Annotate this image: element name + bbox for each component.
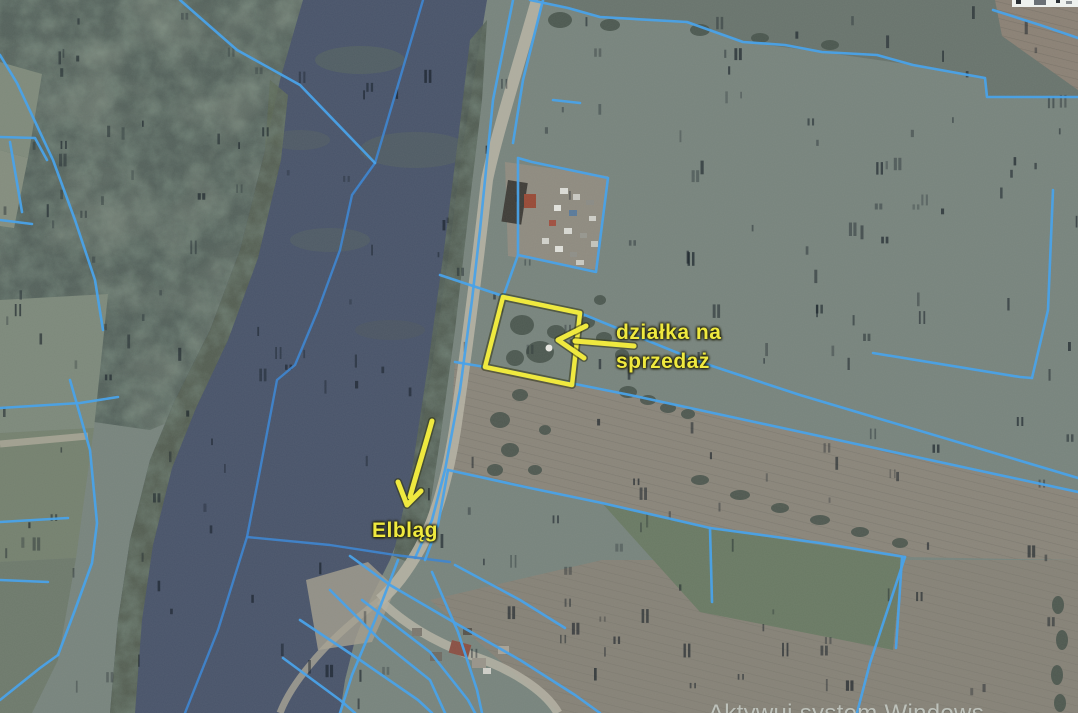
parcel-label-line1: działka na (616, 318, 721, 347)
ui-artifact (1012, 0, 1078, 7)
parcel-label-line2: sprzedaż (616, 347, 721, 376)
aerial-map[interactable]: działka na sprzedaż Elbląg Aktywuj syste… (0, 0, 1078, 713)
map-canvas (0, 0, 1078, 713)
photo-grain (0, 0, 1078, 713)
parcel-for-sale-label: działka na sprzedaż (616, 318, 721, 376)
city-label: Elbląg (372, 516, 438, 545)
windows-activation-watermark: Aktywuj system Windows (708, 700, 984, 713)
